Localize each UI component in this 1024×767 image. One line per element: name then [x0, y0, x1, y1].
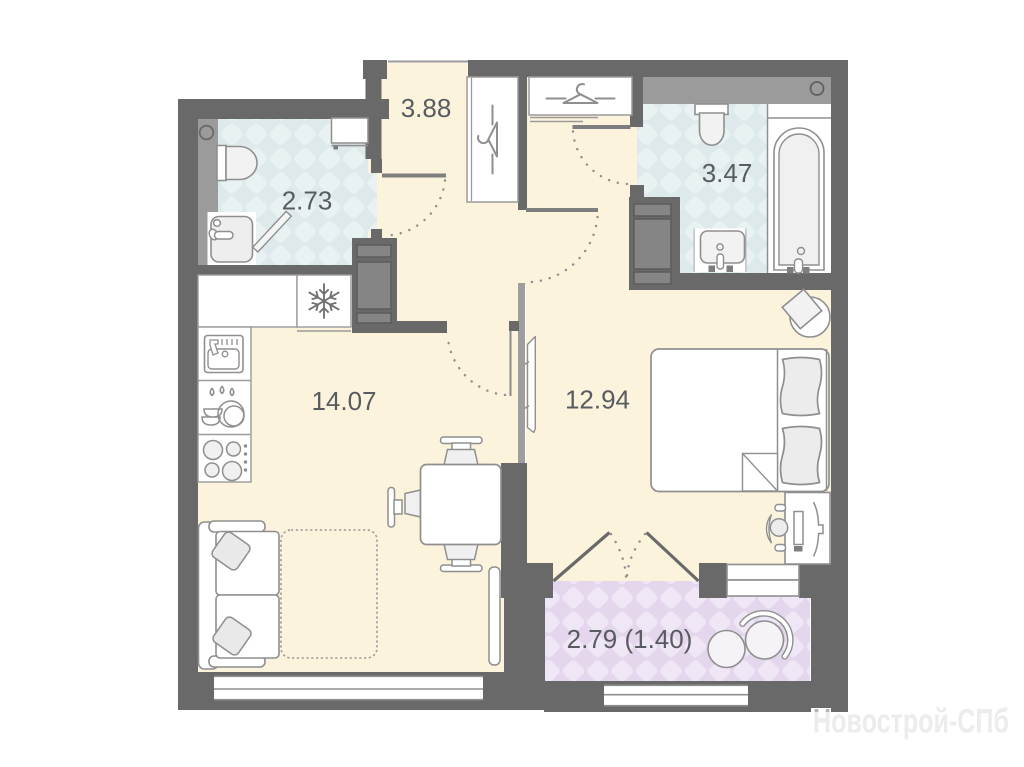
svg-text:12.94: 12.94 [565, 385, 630, 415]
svg-text:2.73: 2.73 [282, 186, 333, 216]
svg-text:3.47: 3.47 [702, 158, 753, 188]
svg-text:2.79 (1.40): 2.79 (1.40) [567, 624, 693, 654]
svg-text:3.88: 3.88 [401, 93, 452, 123]
svg-text:14.07: 14.07 [311, 386, 376, 416]
